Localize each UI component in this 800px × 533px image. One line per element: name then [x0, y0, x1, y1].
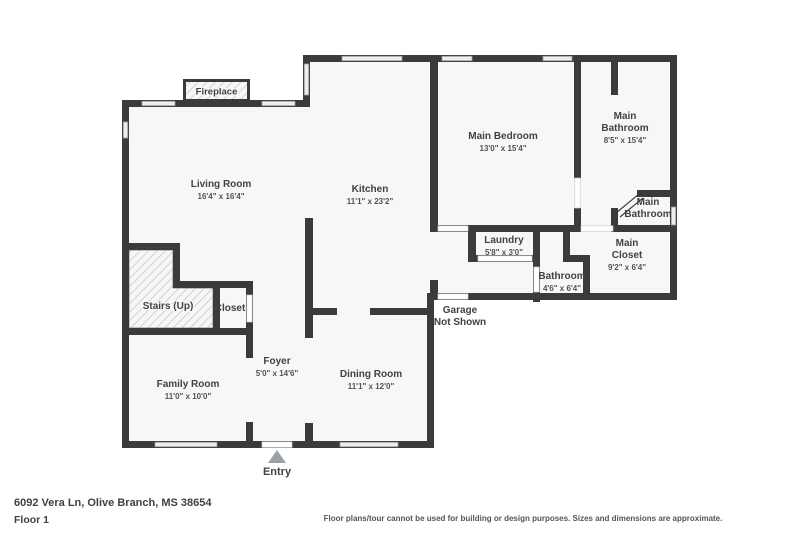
room-dims-foyer: 5'0" x 14'6" [256, 369, 299, 378]
room-dims-dining-room: 11'1" x 12'0" [348, 382, 395, 391]
window [142, 101, 175, 105]
room-dims-main-bedroom: 13'0" x 15'4" [480, 144, 527, 153]
wall-segment [122, 100, 129, 448]
entry-arrow-icon [268, 450, 286, 463]
wall-segment [574, 208, 581, 232]
door-opening [438, 226, 468, 231]
room-label-living-room: Living Room [191, 179, 252, 190]
room-label-main-bathroom: Bathroom [601, 123, 648, 134]
floorplan-svg: Fireplace Entry Living Room16'4" x 16'4"… [0, 0, 800, 533]
room-label-dining-room: Dining Room [340, 369, 402, 380]
room-label-main-bathroom-small: Bathroom [624, 209, 671, 220]
wall-segment [637, 190, 677, 197]
room-label-foyer: Foyer [263, 356, 290, 367]
room-dims-laundry: 5'8" x 3'0" [485, 248, 523, 257]
room-label-bathroom: Bathroom [538, 271, 585, 282]
wall-segment [430, 55, 438, 232]
room-dims-living-room: 16'4" x 16'4" [198, 192, 245, 201]
wall-segment [313, 308, 337, 315]
window [342, 56, 402, 60]
wall-segment [574, 55, 581, 178]
window [262, 101, 295, 105]
floorplan-canvas: Fireplace Entry Living Room16'4" x 16'4"… [0, 0, 800, 533]
entry-label: Entry [263, 466, 292, 478]
door-opening [575, 178, 580, 208]
room-dims-kitchen: 11'1" x 23'2" [347, 197, 394, 206]
door-opening [247, 295, 252, 322]
room-label-kitchen: Kitchen [352, 184, 389, 195]
door-opening [581, 226, 613, 231]
door-opening [438, 294, 468, 299]
room-label-closet: Closet [215, 303, 246, 314]
window [671, 207, 675, 225]
wall-segment [430, 280, 438, 300]
room-dims-main-closet: 9'2" x 6'4" [608, 263, 646, 272]
wall-segment [122, 243, 180, 250]
room-label-main-closet: Closet [612, 250, 643, 261]
window [123, 122, 127, 138]
wall-segment [122, 328, 253, 335]
room-label-garage-note: Not Shown [434, 317, 486, 328]
address-text: 6092 Vera Ln, Olive Branch, MS 38654 [14, 497, 212, 509]
door-opening [262, 442, 292, 448]
wall-segment [370, 308, 434, 315]
room-label-garage-note: Garage [443, 305, 478, 316]
window [543, 56, 572, 60]
room-label-main-bedroom: Main Bedroom [468, 131, 538, 142]
room-label-stairs-up: Stairs (Up) [143, 301, 194, 312]
room-label-main-closet: Main [616, 238, 639, 249]
wall-segment [305, 218, 313, 338]
fireplace-label: Fireplace [196, 87, 238, 98]
room-label-main-bathroom-small: Main [637, 197, 660, 208]
window [155, 442, 217, 446]
room-dims-bathroom: 4'6" x 6'4" [543, 284, 581, 293]
room-dims-family-room: 11'0" x 10'0" [165, 392, 212, 401]
window [442, 56, 472, 60]
wall-segment [246, 422, 253, 448]
wall-segment [611, 62, 618, 95]
room-dims-main-bathroom: 8'5" x 15'4" [604, 136, 647, 145]
disclaimer-text: Floor plans/tour cannot be used for buil… [278, 514, 768, 523]
floor-label: Floor 1 [14, 514, 49, 526]
wall-segment [305, 423, 313, 448]
room-label-family-room: Family Room [157, 379, 220, 390]
room-label-main-bathroom: Main [614, 111, 637, 122]
window [304, 64, 308, 95]
room-label-laundry: Laundry [484, 235, 524, 246]
window [340, 442, 398, 446]
wall-segment [670, 55, 677, 300]
wall-segment [613, 225, 677, 232]
